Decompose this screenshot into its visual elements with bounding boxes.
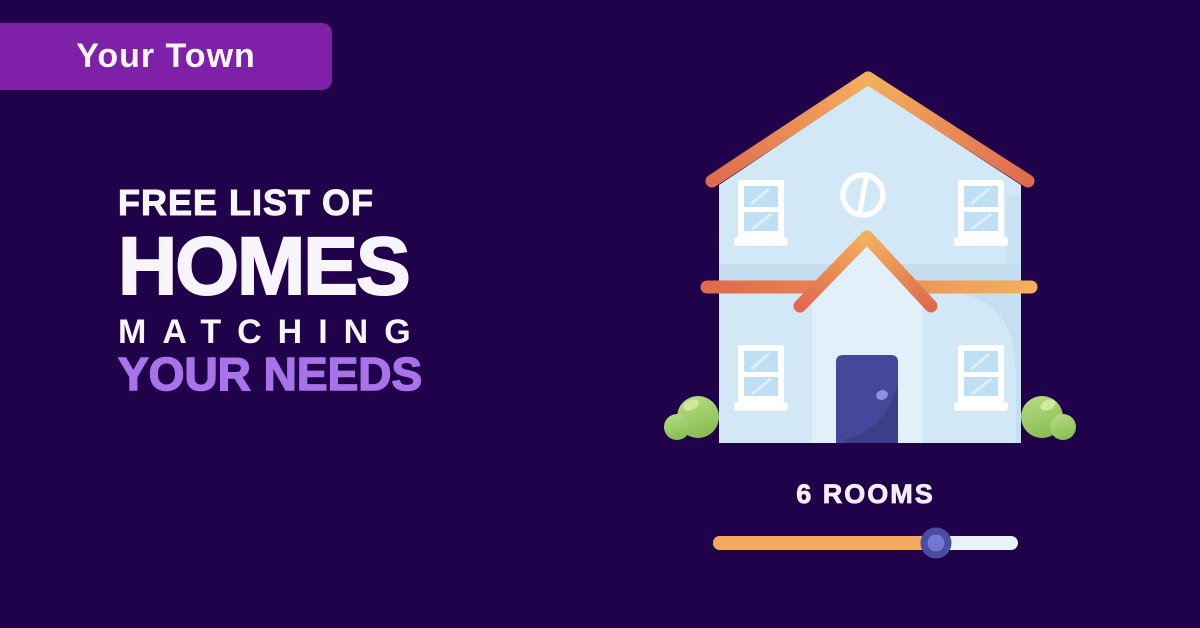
headline-line-1: FREE LIST OF — [118, 185, 374, 221]
headline-line-3: MATCHING — [118, 315, 427, 349]
window-upper-left — [734, 180, 788, 246]
room-count-label: 6 ROOMS — [713, 479, 1018, 510]
headline-line-4: YOUR NEEDS — [118, 351, 422, 397]
window-upper-right — [954, 180, 1008, 246]
room-slider[interactable] — [713, 536, 1018, 550]
slider-fill — [713, 536, 936, 550]
slider-thumb[interactable] — [920, 528, 951, 559]
town-badge: Your Town — [0, 23, 332, 90]
headline-line-2: HOMES — [118, 226, 409, 308]
slider-thumb-inner — [927, 535, 944, 552]
house-icon — [660, 55, 1080, 455]
window-lower-left — [734, 345, 788, 411]
house-illustration — [660, 55, 1080, 455]
front-door — [836, 355, 898, 443]
bush-left-icon — [664, 396, 719, 440]
bush-right-icon — [1021, 396, 1076, 440]
window-lower-right — [954, 345, 1008, 411]
town-badge-label: Your Town — [76, 37, 256, 76]
